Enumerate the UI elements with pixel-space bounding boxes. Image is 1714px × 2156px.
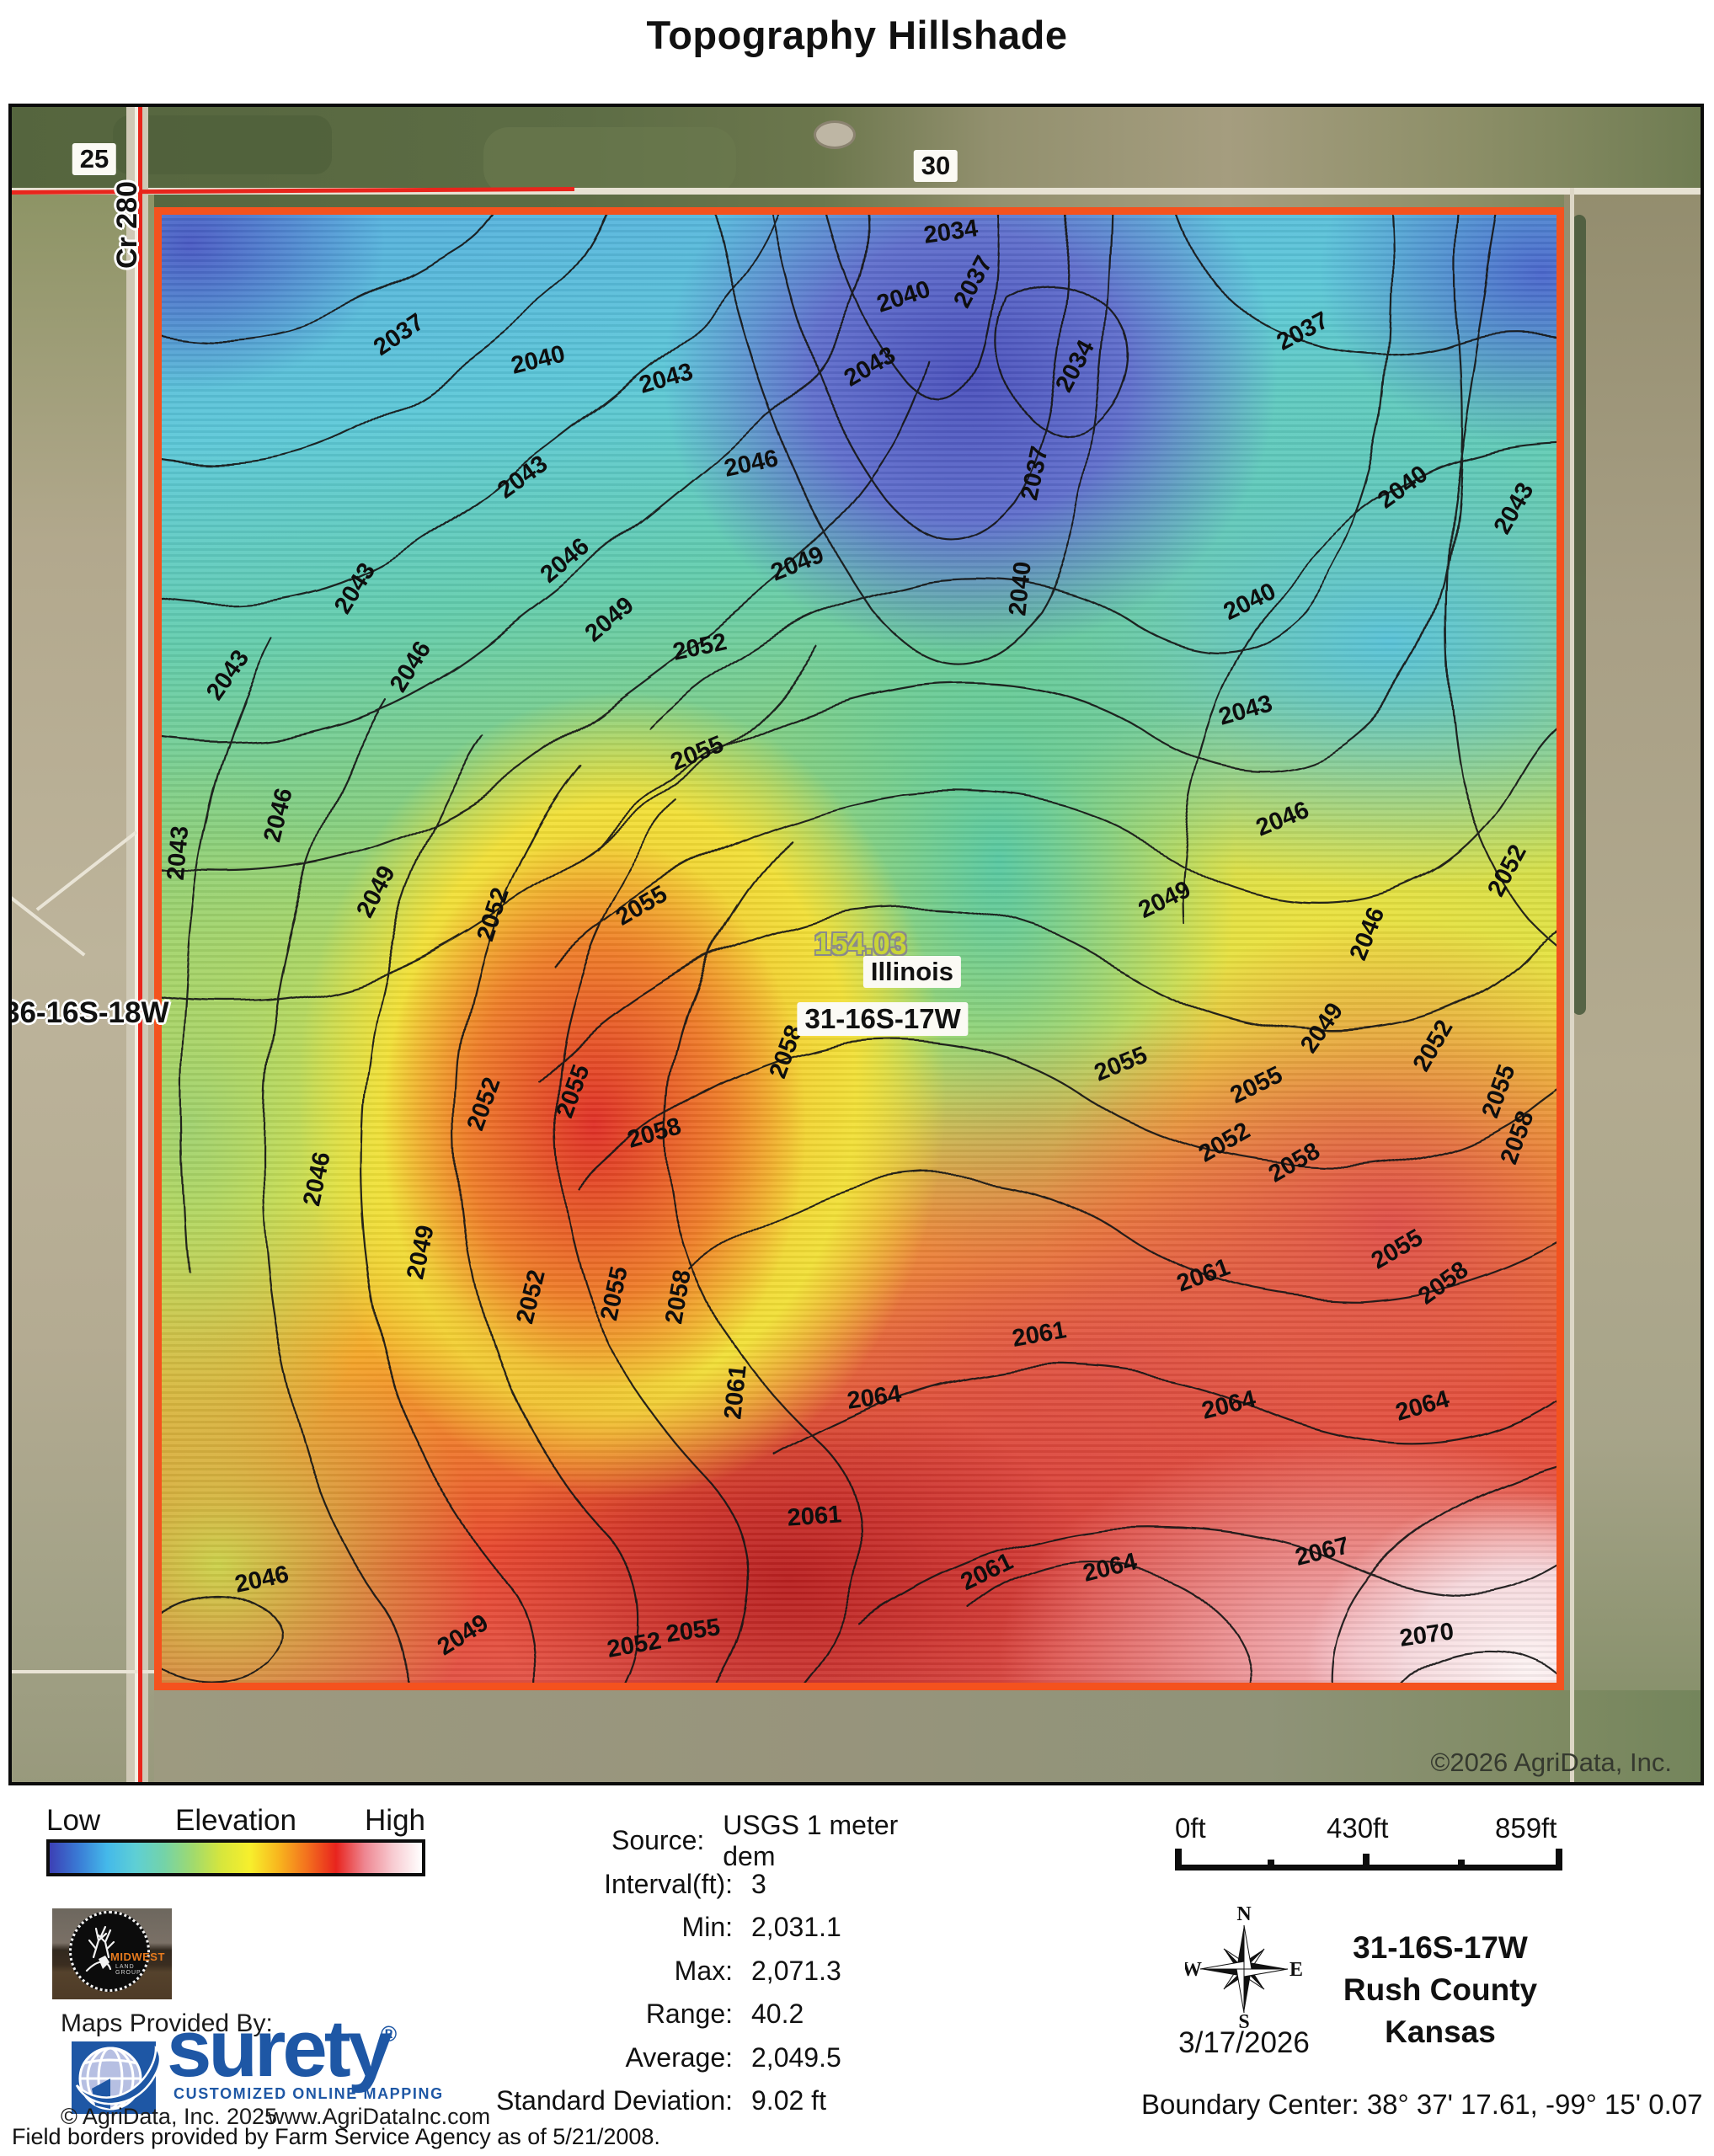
surety-wordmark: surety bbox=[167, 2003, 389, 2095]
contour-label: 2043 bbox=[840, 342, 900, 393]
section-number-25: 25 bbox=[72, 143, 116, 175]
location-block: 31-16S-17W Rush County Kansas bbox=[1339, 1927, 1541, 2053]
contour-label: 2055 bbox=[595, 1264, 634, 1323]
contour-label: 2049 bbox=[402, 1223, 441, 1282]
land-group-text: LAND GROUP bbox=[115, 1964, 147, 1976]
surety-tagline: CUSTOMIZED ONLINE MAPPING bbox=[174, 2085, 444, 2103]
compass-n: N bbox=[1236, 1905, 1252, 1925]
scalebar-tick bbox=[1363, 1854, 1370, 1870]
contour-label: 2046 bbox=[1345, 904, 1391, 964]
compass-s: S bbox=[1238, 2011, 1249, 2028]
stat-row: Source:USGS 1 meter dem bbox=[278, 1819, 943, 1863]
midwest-land-group-logo: MIDWEST LAND GROUP bbox=[52, 1908, 172, 1999]
contour-label: 2058 bbox=[661, 1267, 698, 1326]
scalebar-tick bbox=[1175, 1849, 1182, 1870]
contour-label: 2067 bbox=[1292, 1532, 1352, 1572]
location-county: Rush County bbox=[1339, 1969, 1541, 2011]
stat-value: 2,071.3 bbox=[751, 1956, 841, 1987]
contour-label: 2046 bbox=[1252, 797, 1313, 843]
treeline bbox=[1573, 215, 1586, 1015]
field-borders-footnote: Field borders provided by Farm Service A… bbox=[12, 2124, 660, 2150]
road-vertical-right bbox=[1570, 188, 1574, 1782]
compass-e: E bbox=[1290, 1959, 1303, 1981]
registered-mark: ® bbox=[381, 2021, 397, 2047]
map-area: 2034203720402034203720372040204320432040… bbox=[8, 104, 1704, 1785]
contour-label: 2052 bbox=[1482, 841, 1532, 901]
stat-value: 9.02 ft bbox=[751, 2085, 826, 2116]
contour-label: 2058 bbox=[624, 1113, 684, 1155]
contour-label: 2070 bbox=[1398, 1618, 1455, 1653]
contour-label: 2043 bbox=[1215, 690, 1275, 732]
aerial-right-strip bbox=[1564, 191, 1701, 1785]
contour-label: 2055 bbox=[667, 730, 728, 776]
boundary-center: Boundary Center: 38° 37' 17.61, -99° 15'… bbox=[1141, 2089, 1702, 2121]
deer-badge: MIDWEST LAND GROUP bbox=[69, 1911, 150, 1992]
contour-label: 2037 bbox=[948, 252, 998, 312]
contour-label: 2052 bbox=[462, 1074, 506, 1134]
contour-label: 2049 bbox=[767, 541, 828, 587]
stat-value: 3 bbox=[751, 1869, 766, 1900]
page-title: Topography Hillshade bbox=[0, 12, 1714, 58]
contour-label: 2046 bbox=[232, 1561, 291, 1599]
location-state: Kansas bbox=[1339, 2011, 1541, 2053]
road-name-cr280: Cr 280 bbox=[111, 141, 170, 309]
contour-label: 2061 bbox=[1173, 1254, 1234, 1299]
contour-label: 2046 bbox=[535, 533, 595, 590]
contour-label: 2052 bbox=[472, 885, 515, 946]
scalebar-tick bbox=[1556, 1849, 1562, 1870]
contour-label: 2058 bbox=[1263, 1138, 1324, 1189]
contour-label: 2049 bbox=[1295, 998, 1349, 1059]
contour-label: 2040 bbox=[509, 340, 569, 381]
stat-value: 40.2 bbox=[751, 1999, 804, 2030]
contour-label: 2049 bbox=[1134, 876, 1194, 925]
stat-label: Source: bbox=[278, 1825, 704, 1856]
compass-w: W bbox=[1185, 1959, 1202, 1981]
contour-label: 2049 bbox=[433, 1609, 494, 1662]
map-copyright: ©2026 AgriData, Inc. bbox=[1430, 1748, 1672, 1778]
contour-label: 2055 bbox=[611, 881, 671, 932]
parcel-name-label: Illinois bbox=[863, 956, 961, 988]
compass-rose: N E S W bbox=[1185, 1905, 1303, 2028]
aerial-top-strip bbox=[12, 107, 1701, 215]
contour-label: 2043 bbox=[1489, 478, 1540, 538]
section-line-red-vertical bbox=[138, 107, 142, 1782]
contour-label: 2037 bbox=[1016, 444, 1055, 503]
contour-label: 2064 bbox=[1081, 1548, 1140, 1588]
contour-label: 2052 bbox=[511, 1267, 552, 1326]
stat-value: USGS 1 meter dem bbox=[723, 1810, 943, 1872]
contour-label: 2061 bbox=[1010, 1316, 1068, 1353]
contour-label: 2055 bbox=[665, 1614, 722, 1649]
stat-value: 2,031.1 bbox=[751, 1912, 841, 1943]
stat-label: Max: bbox=[278, 1956, 733, 1987]
contour-label: 2034 bbox=[1050, 335, 1100, 396]
contour-label: 2040 bbox=[1373, 461, 1434, 515]
stat-row: Max:2,071.3 bbox=[278, 1950, 943, 1993]
contour-label: 2061 bbox=[957, 1548, 1017, 1597]
contour-label: 2052 bbox=[1408, 1015, 1460, 1075]
contour-label: 2046 bbox=[385, 637, 437, 697]
contour-label: 2052 bbox=[606, 1628, 664, 1665]
contour-label: 2043 bbox=[329, 558, 382, 619]
report-canvas: Topography Hillshade bbox=[0, 0, 1714, 2156]
stat-row: Min:2,031.1 bbox=[278, 1906, 943, 1950]
contour-label: 2043 bbox=[201, 645, 255, 706]
contour-label: 2052 bbox=[1194, 1117, 1255, 1168]
contour-label: 2064 bbox=[1199, 1385, 1259, 1426]
stat-value: 2,049.5 bbox=[751, 2042, 841, 2073]
field-border-line bbox=[12, 1670, 154, 1673]
farmstead-dot bbox=[814, 120, 856, 149]
contour-label: 2064 bbox=[846, 1380, 903, 1416]
contour-label: 2037 bbox=[1272, 307, 1332, 357]
contour-label: 2040 bbox=[873, 275, 934, 318]
stat-label: Min: bbox=[278, 1912, 733, 1943]
contour-label: 2052 bbox=[670, 628, 729, 667]
contour-label: 2034 bbox=[922, 215, 980, 250]
stat-label: Interval(ft): bbox=[278, 1869, 733, 1900]
contour-label: 2043 bbox=[163, 825, 195, 882]
scalebar-label-mid: 430ft bbox=[1327, 1812, 1388, 1844]
contour-label: 2064 bbox=[1392, 1386, 1452, 1428]
contour-label: 2037 bbox=[369, 308, 430, 361]
contour-label: 2055 bbox=[1226, 1061, 1287, 1110]
parcel-boundary: 2034203720402034203720372040204320432040… bbox=[154, 207, 1564, 1690]
parcel-section-label: 31-16S-17W bbox=[798, 1002, 969, 1036]
contour-label: 2049 bbox=[351, 861, 401, 921]
section-number-30: 30 bbox=[914, 150, 958, 182]
contour-label: 2055 bbox=[1367, 1224, 1428, 1275]
contour-label: 2049 bbox=[579, 592, 639, 648]
scalebar-tick bbox=[1458, 1860, 1465, 1870]
location-section: 31-16S-17W bbox=[1339, 1927, 1541, 1969]
contour-label: 2043 bbox=[493, 451, 553, 505]
contour-label: 2058 bbox=[1413, 1257, 1474, 1311]
scalebar-label-0: 0ft bbox=[1175, 1812, 1206, 1844]
contour-label: 2040 bbox=[1004, 561, 1038, 618]
contour-label: 2055 bbox=[1091, 1042, 1151, 1088]
contour-label: 2061 bbox=[719, 1364, 753, 1421]
contour-label: 2055 bbox=[551, 1061, 595, 1122]
contour-label: 2061 bbox=[787, 1501, 843, 1532]
aerial-patch bbox=[483, 127, 736, 195]
contour-label: 2046 bbox=[723, 445, 782, 483]
scalebar-label-end: 859ft bbox=[1495, 1812, 1556, 1844]
contour-label: 2046 bbox=[259, 786, 299, 846]
scalebar-tick bbox=[1268, 1860, 1274, 1870]
map-date: 3/17/2026 bbox=[1177, 2026, 1311, 2060]
contour-label: 2040 bbox=[1219, 578, 1279, 627]
contour-label: 2043 bbox=[637, 358, 697, 400]
contour-label: 2046 bbox=[299, 1150, 338, 1209]
section-label-36-16s-18w: 36-16S-18W bbox=[8, 996, 168, 1030]
midwest-text: MIDWEST bbox=[110, 1951, 165, 1963]
